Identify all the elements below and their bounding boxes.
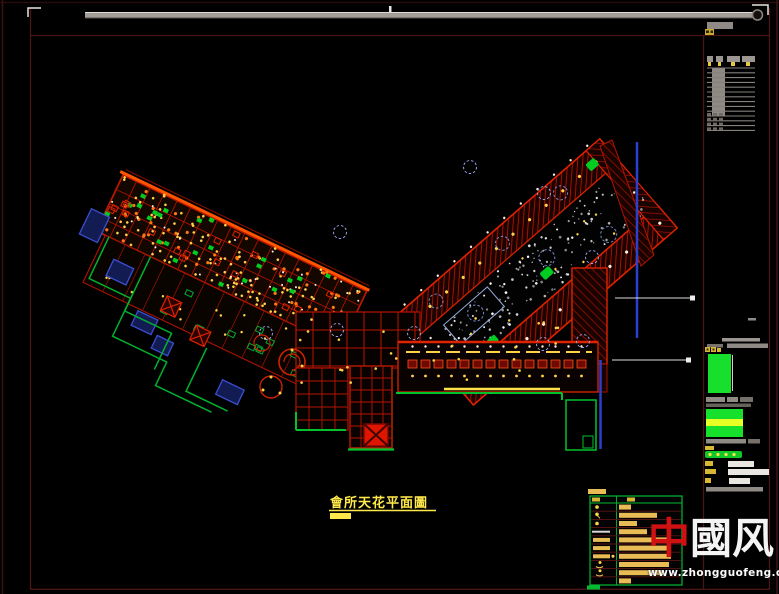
stair-protrusion (348, 366, 394, 450)
watermark-brand: 中 國 风 (648, 518, 779, 560)
watermark-url: www.zhongguofeng.com (648, 568, 779, 579)
stamp-icon (705, 29, 714, 35)
watermark: 中 國 风 www.zhongguofeng.com (648, 518, 779, 579)
title-block-column (705, 22, 769, 492)
floor-plan (35, 136, 695, 451)
bar-end-knob-icon (753, 10, 763, 20)
cad-wallpaper: 會所天花平面圖 中 國 风 www.zhongguofeng.com (0, 0, 779, 594)
legend-bar (619, 529, 647, 534)
legend-header-tag (588, 489, 606, 494)
cad-canvas: 會所天花平面圖 (0, 0, 779, 594)
drawing-title-text: 會所天花平面圖 (330, 495, 428, 511)
title-block-footer (705, 318, 769, 492)
revision-table (707, 56, 755, 130)
legend-bar (619, 521, 637, 526)
legend-bar (619, 578, 631, 583)
top-gray-bar (85, 6, 763, 20)
legend-bar (619, 505, 631, 510)
green-annex (566, 400, 596, 450)
watermark-char-feng: 风 (732, 518, 774, 560)
watermark-char-zhong: 中 (648, 518, 690, 560)
corridor (398, 342, 598, 392)
drawing-title: 會所天花平面圖 (329, 495, 436, 519)
legend-footer-tag (587, 586, 600, 590)
center-tick-icon (389, 6, 392, 12)
watermark-char-guo: 國 (690, 518, 732, 560)
title-scale-block (330, 513, 351, 519)
green-field-1 (708, 354, 731, 393)
mini-seals-icon (705, 347, 721, 352)
